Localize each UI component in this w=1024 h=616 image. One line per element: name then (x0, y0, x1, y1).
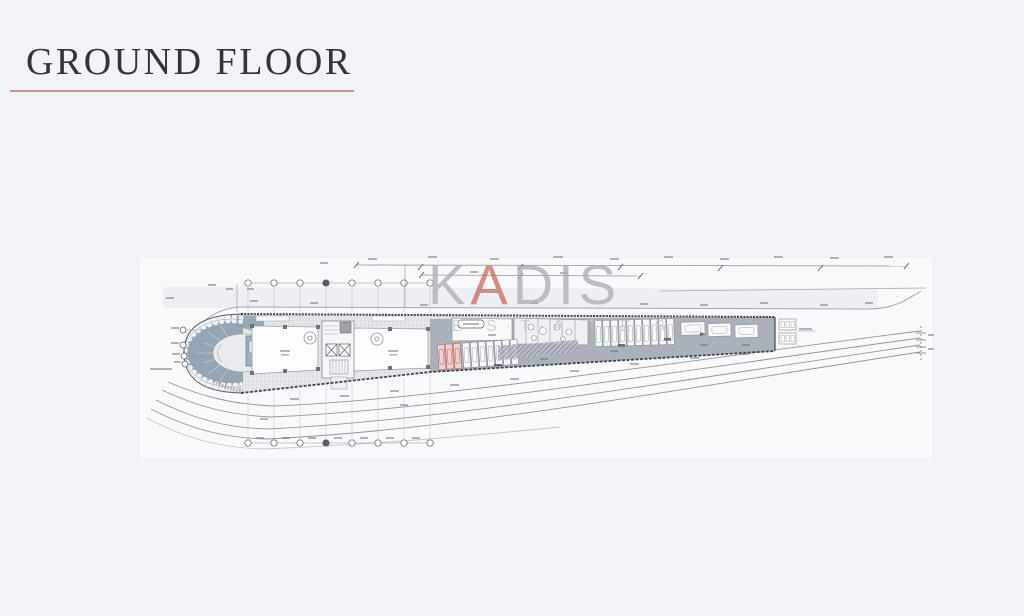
parking-stalls-red (437, 343, 462, 370)
floor-plan (0, 0, 1024, 616)
slide-canvas: GROUND FLOOR (0, 0, 1024, 616)
floor-plan-drawing (0, 0, 1024, 616)
